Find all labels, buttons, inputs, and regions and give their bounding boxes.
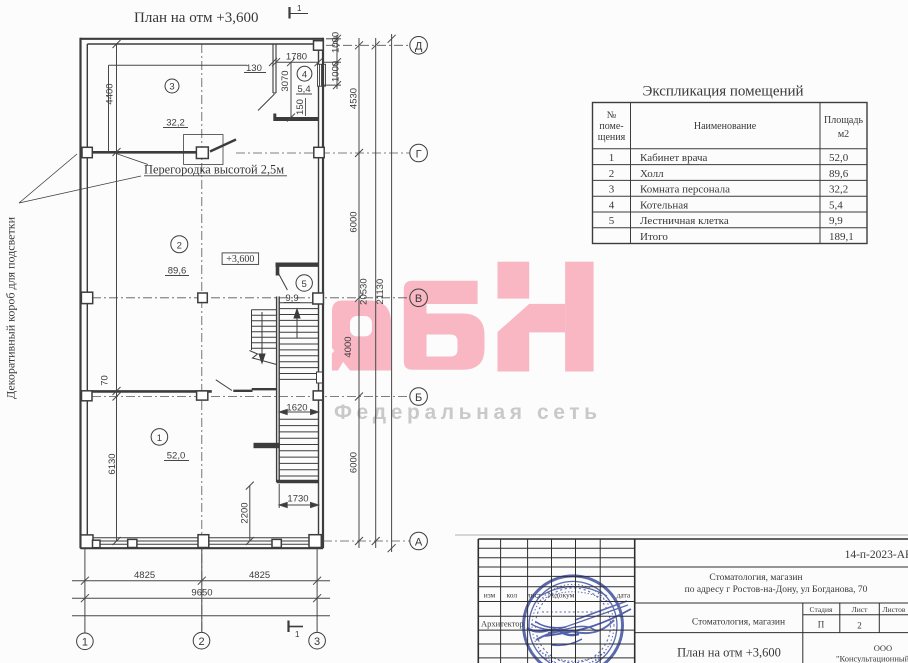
svg-text:189,1: 189,1 (829, 231, 854, 243)
svg-text:План на отм +3,600: План на отм +3,600 (677, 646, 781, 660)
svg-text:Декоративный короб для подсвет: Декоративный короб для подсветки (4, 216, 18, 399)
svg-text:3: 3 (169, 82, 174, 93)
svg-text:План на отм +3,600: План на отм +3,600 (134, 10, 259, 26)
svg-text:Площадь: Площадь (824, 115, 863, 126)
svg-text:52,0: 52,0 (167, 451, 186, 462)
svg-text:Лестничная клетка: Лестничная клетка (640, 215, 729, 227)
svg-text:21130: 21130 (375, 279, 386, 305)
svg-text:Наименование: Наименование (694, 121, 757, 132)
svg-text:4825: 4825 (249, 570, 270, 581)
svg-text:3: 3 (609, 184, 615, 196)
svg-text:70: 70 (100, 375, 111, 386)
svg-text:4825: 4825 (134, 570, 155, 581)
svg-text:ООО: ООО (874, 643, 892, 653)
svg-text:5,4: 5,4 (297, 84, 310, 95)
svg-text:Экспликация помещений: Экспликация помещений (642, 84, 803, 100)
svg-text:кол: кол (506, 591, 517, 600)
svg-text:Стадия: Стадия (810, 605, 833, 614)
svg-text:4530: 4530 (349, 88, 360, 109)
svg-text:1620: 1620 (286, 403, 307, 414)
svg-text:14-п-2023-АР: 14-п-2023-АР (845, 549, 908, 561)
svg-text:Федеральная сеть: Федеральная сеть (334, 401, 602, 424)
svg-text:м2: м2 (838, 129, 849, 140)
svg-text:Перегородка высотой 2,5м: Перегородка высотой 2,5м (144, 163, 284, 177)
svg-text:9650: 9650 (191, 588, 212, 599)
svg-text:Стоматология, магазин: Стоматология, магазин (709, 573, 802, 583)
svg-text:Архитектор: Архитектор (481, 619, 524, 629)
svg-text:9,9: 9,9 (829, 215, 843, 227)
svg-text:щения: щения (598, 132, 626, 143)
svg-text:1: 1 (82, 636, 88, 648)
svg-text:6000: 6000 (349, 211, 360, 232)
svg-text:лист: лист (527, 591, 542, 600)
svg-text:89,6: 89,6 (829, 168, 849, 180)
svg-text:1: 1 (297, 4, 302, 13)
svg-text:Комната персонала: Комната персонала (640, 184, 730, 196)
svg-text:32,2: 32,2 (829, 184, 848, 196)
svg-text:1730: 1730 (287, 494, 308, 505)
svg-text:6000: 6000 (349, 452, 360, 473)
svg-text:1000: 1000 (331, 61, 342, 82)
svg-text:дата: дата (617, 591, 631, 600)
svg-text:5: 5 (609, 215, 615, 227)
svg-text:по адресу г Ростов-на-Дону,: по адресу г Ростов-на-Дону, ул Богданова… (685, 585, 868, 595)
svg-text:поме-: поме- (599, 121, 623, 132)
svg-text:№: № (607, 110, 617, 121)
svg-text:1: 1 (609, 152, 615, 164)
svg-text:"Консультационный Цен: "Консультационный Цен (836, 654, 908, 663)
svg-text:П: П (818, 620, 825, 630)
svg-text:1: 1 (157, 433, 162, 444)
svg-text:4: 4 (609, 199, 615, 211)
svg-text:3: 3 (314, 636, 320, 648)
svg-text:Итого: Итого (640, 231, 668, 243)
svg-text:Б: Б (415, 392, 422, 404)
svg-text:6130: 6130 (107, 453, 118, 474)
svg-text:Д: Д (415, 41, 423, 53)
svg-text:№докум.: №докум. (548, 591, 577, 600)
svg-text:2200: 2200 (240, 502, 251, 523)
svg-text:изм: изм (484, 591, 496, 600)
svg-text:2: 2 (857, 621, 862, 631)
svg-text:Стоматология, магазин: Стоматология, магазин (692, 618, 785, 628)
svg-text:+3,600: +3,600 (226, 254, 254, 265)
svg-text:2: 2 (177, 240, 182, 251)
svg-text:Холл: Холл (640, 168, 664, 180)
svg-text:20530: 20530 (359, 278, 370, 304)
svg-text:3070: 3070 (280, 70, 291, 91)
svg-text:Листов: Листов (883, 605, 906, 614)
svg-text:2: 2 (198, 636, 204, 648)
svg-text:5: 5 (302, 279, 307, 290)
svg-text:5,4: 5,4 (829, 199, 843, 211)
svg-text:В: В (415, 293, 422, 305)
svg-text:32,2: 32,2 (166, 118, 185, 129)
svg-text:Котельная: Котельная (640, 199, 688, 211)
svg-text:Лист: Лист (852, 605, 868, 614)
svg-text:4: 4 (302, 69, 307, 80)
svg-text:89,6: 89,6 (168, 266, 187, 277)
svg-text:1780: 1780 (286, 52, 307, 63)
svg-text:2: 2 (609, 168, 615, 180)
svg-text:Г: Г (416, 148, 422, 160)
svg-text:52,0: 52,0 (829, 152, 849, 164)
svg-text:4000: 4000 (343, 336, 354, 357)
svg-text:4400: 4400 (105, 83, 116, 104)
svg-text:А: А (415, 536, 423, 548)
svg-text:150: 150 (295, 99, 306, 115)
svg-text:1: 1 (295, 630, 300, 639)
svg-text:1000: 1000 (331, 32, 342, 53)
svg-text:Кабинет врача: Кабинет врача (640, 152, 708, 164)
